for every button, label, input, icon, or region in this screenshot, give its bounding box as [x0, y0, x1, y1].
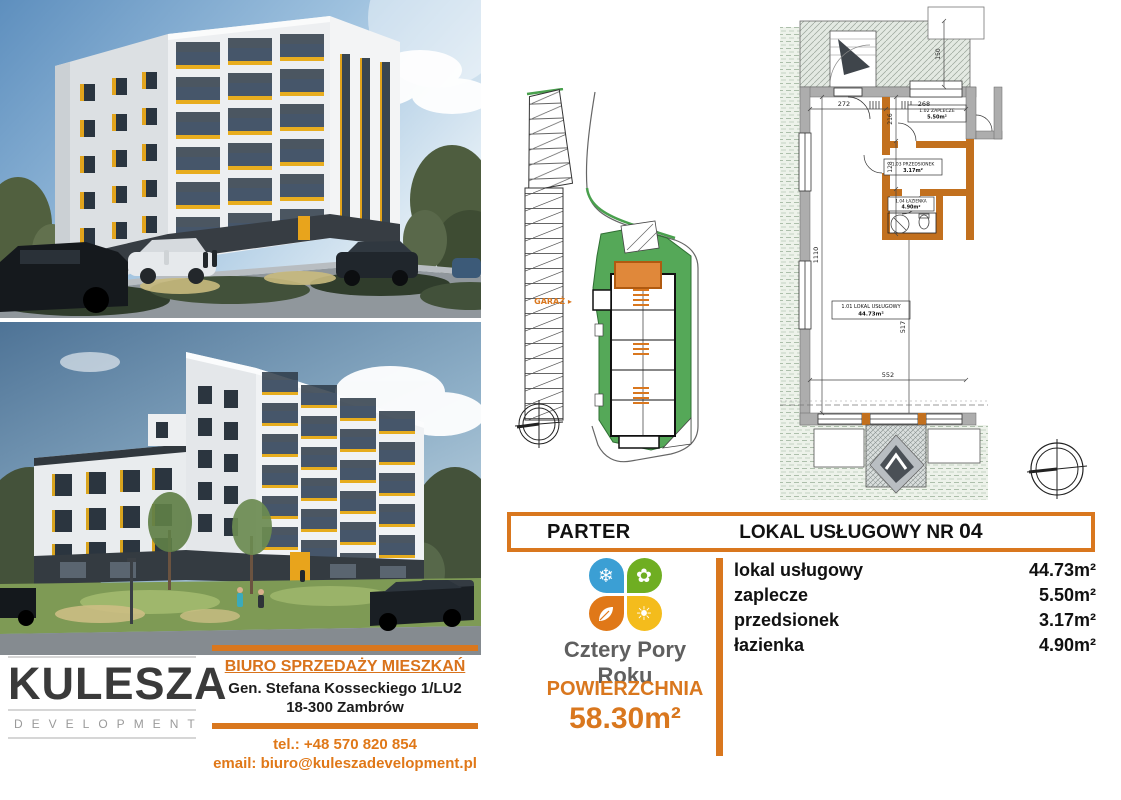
sales-office-block: BIURO SPRZEDAŻY MIESZKAŃ Gen. Stefana Ko… [212, 645, 478, 773]
building-render-top [0, 0, 481, 318]
svg-text:268: 268 [918, 100, 930, 108]
lokal-tag: 1.01 LOKAL USŁUGOWY [841, 304, 901, 310]
black-car [0, 242, 128, 313]
orange-bar [212, 723, 478, 729]
garage-box [593, 290, 611, 310]
room-area: 4.90m² [1039, 633, 1096, 658]
outer-walls [800, 87, 1002, 425]
developer-name: KULESZA [8, 660, 196, 707]
svg-text:1110: 1110 [812, 247, 820, 264]
terrace-area [800, 7, 984, 87]
unit-floor-plan: 1.02 ZAPLECZE 5.50m² 1.03 PRZEDSIONEK 3.… [778, 5, 1108, 505]
unit-number: 04 [959, 520, 982, 543]
compass-icon [1027, 439, 1087, 499]
leaf-icon [596, 604, 616, 624]
svg-text:216: 216 [887, 113, 894, 125]
highlighted-unit [615, 262, 661, 288]
przedsionek-tag: 1.03 PRZEDSIONEK [892, 162, 935, 168]
list-item: łazienka 4.90m² [734, 633, 1096, 658]
room-area: 5.50m² [1039, 583, 1096, 608]
area-label: POWIERZCHNIA [535, 678, 715, 701]
room-name: zaplecze [734, 583, 808, 608]
wall-openings [799, 81, 962, 424]
bathroom-fixtures [888, 213, 936, 233]
list-item: przedsionek 3.17m² [734, 608, 1096, 633]
floor-label: PARTER [547, 521, 631, 544]
room-name: łazienka [734, 633, 804, 658]
four-seasons-petals: ❄ ✿ ☀ [589, 558, 662, 631]
svg-text:3.17m²: 3.17m² [903, 168, 923, 174]
email-address[interactable]: email: biuro@kuleszadevelopment.pl [212, 754, 478, 773]
phone-number[interactable]: tel.: +48 570 820 854 [212, 735, 478, 754]
dimension-labels: 272 268 216 128 517 552 1110 150 [812, 48, 942, 379]
svg-text:5.50m²: 5.50m² [927, 115, 947, 121]
lazienka-tag: 1.04 ŁAZIENKA [895, 199, 926, 204]
snowflake-icon: ❄ [598, 565, 614, 587]
room-name: lokal usługowy [734, 558, 863, 583]
summer-petal: ☀ [627, 596, 662, 631]
list-item: zaplecze 5.50m² [734, 583, 1096, 608]
divider [8, 737, 196, 739]
project-logo: ❄ ✿ ☀ Cztery Pory Roku [535, 558, 715, 689]
room-area: 44.73m² [1029, 558, 1096, 583]
winter-petal: ❄ [589, 558, 624, 593]
parking-strip [525, 89, 573, 420]
interior-orange-walls [862, 97, 974, 425]
svg-text:128: 128 [887, 161, 894, 173]
svg-text:517: 517 [899, 321, 907, 333]
area-value: 58.30m² [535, 702, 715, 736]
address-line1: Gen. Stefana Kosseckiego 1/LU2 [212, 679, 478, 698]
svg-text:272: 272 [838, 100, 850, 108]
developer-logo: KULESZA DEVELOPMENT [8, 656, 196, 739]
entrance-portal [298, 216, 310, 240]
svg-text:150: 150 [935, 48, 942, 60]
radiator-marks [870, 101, 911, 109]
unit-header-bar: PARTER LOKAL USŁUGOWY NR 04 [507, 512, 1095, 552]
building-render-bottom [0, 322, 481, 655]
spring-petal: ✿ [627, 558, 662, 593]
svg-text:4.90m²: 4.90m² [902, 204, 921, 210]
garage-label: GARAŻ ▸ [534, 296, 572, 306]
address-line2: 18-300 Zambrów [212, 698, 478, 717]
autumn-petal [589, 596, 624, 631]
svg-text:552: 552 [882, 371, 894, 379]
list-item: lokal usługowy 44.73m² [734, 558, 1096, 583]
room-area: 3.17m² [1039, 608, 1096, 633]
site-plan: GARAŻ ▸ [495, 88, 710, 488]
unit-title: LOKAL USŁUGOWY NR 04 [631, 520, 1091, 544]
svg-text:44.73m²: 44.73m² [858, 311, 884, 318]
orange-bar [212, 645, 478, 651]
offer-sheet: GARAŻ ▸ [0, 0, 1121, 800]
room-name: przedsionek [734, 608, 839, 633]
developer-subtitle: DEVELOPMENT [8, 711, 196, 737]
sun-icon: ☀ [635, 603, 652, 625]
room-tags: 1.02 ZAPLECZE 5.50m² 1.03 PRZEDSIONEK 3.… [832, 105, 966, 319]
orange-divider [716, 558, 723, 756]
flower-icon: ✿ [636, 565, 652, 587]
sales-office-title: BIURO SPRZEDAŻY MIESZKAŃ [212, 658, 478, 676]
room-list: lokal usługowy 44.73m² zaplecze 5.50m² p… [734, 558, 1096, 658]
